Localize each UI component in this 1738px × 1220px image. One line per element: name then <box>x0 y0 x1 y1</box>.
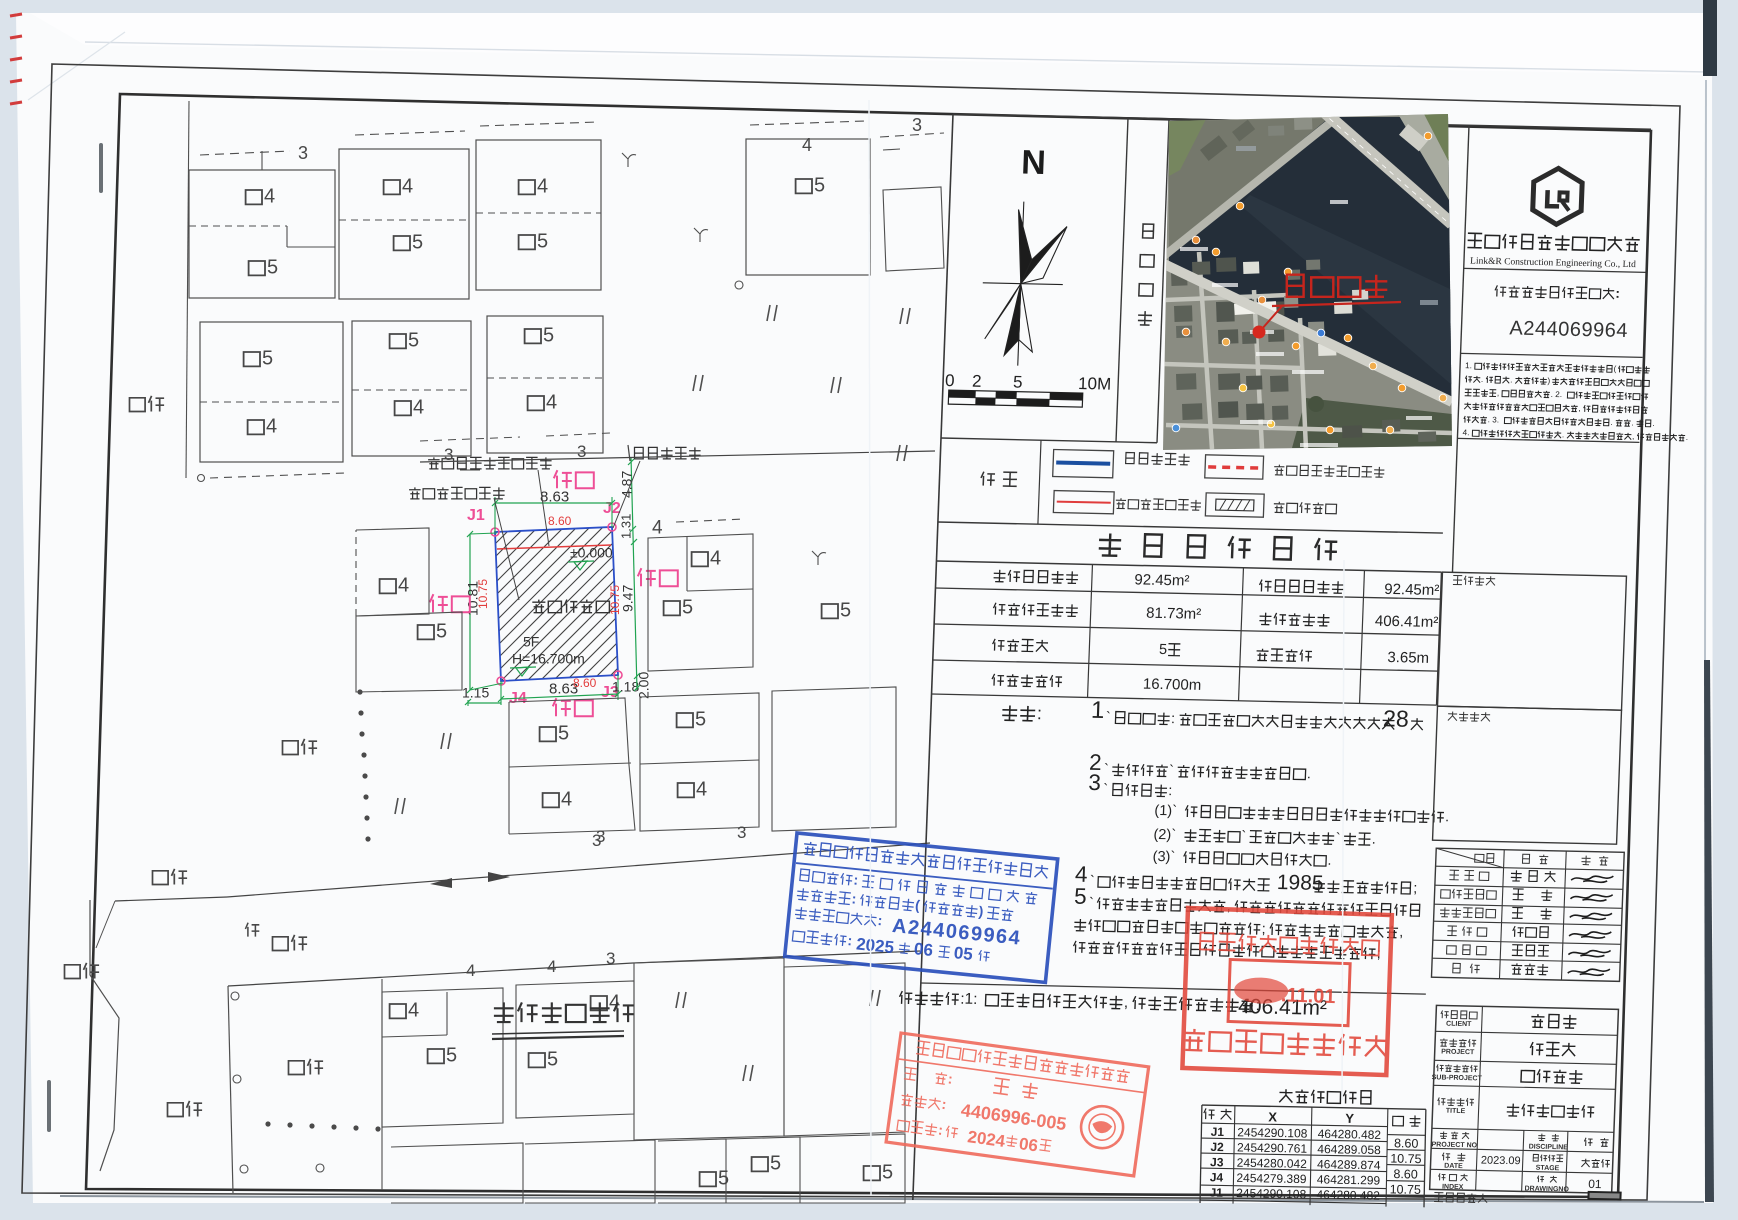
svg-text:5: 5 <box>682 596 693 618</box>
svg-text:5: 5 <box>814 174 825 196</box>
svg-text:Y: Y <box>1345 1111 1354 1126</box>
svg-text:2454279.389: 2454279.389 <box>1236 1171 1307 1186</box>
svg-text:N: N <box>1021 144 1047 183</box>
svg-text:92.45m²: 92.45m² <box>1134 571 1190 589</box>
svg-text:H=16.700m: H=16.700m <box>512 651 585 667</box>
svg-text:J4: J4 <box>1210 1170 1224 1184</box>
svg-text:8.63: 8.63 <box>540 488 569 505</box>
svg-text::1:: :1: <box>960 991 978 1008</box>
svg-text:5F: 5F <box>523 634 539 650</box>
svg-text:16.700m: 16.700m <box>1143 676 1202 694</box>
svg-text::: : <box>1171 711 1176 727</box>
svg-text:A244069964: A244069964 <box>1509 317 1628 342</box>
svg-text:,: , <box>1497 389 1500 398</box>
svg-text:.: . <box>1652 419 1655 428</box>
svg-text:4: 4 <box>264 185 275 207</box>
svg-text:TITLE: TITLE <box>1446 1108 1466 1115</box>
svg-text:3: 3 <box>444 445 453 464</box>
svg-text:5: 5 <box>262 347 273 369</box>
svg-text:8.60: 8.60 <box>1394 1136 1419 1150</box>
svg-text:5: 5 <box>408 329 419 351</box>
svg-text:8.60: 8.60 <box>548 514 572 528</box>
svg-text:3: 3 <box>577 442 586 461</box>
svg-text:10.75: 10.75 <box>1390 1182 1422 1197</box>
svg-text:.: . <box>1307 766 1312 782</box>
svg-text:1.: 1. <box>1465 361 1472 370</box>
svg-text:`: ` <box>1089 874 1094 890</box>
svg-text:;: ; <box>1261 921 1266 937</box>
svg-text:5: 5 <box>770 1152 781 1174</box>
svg-text:5: 5 <box>1013 373 1023 392</box>
svg-text:.: . <box>1610 418 1613 427</box>
svg-text:PROJECT NO: PROJECT NO <box>1431 1141 1477 1149</box>
svg-text:J1: J1 <box>1211 1125 1225 1139</box>
svg-text:92.45m²: 92.45m² <box>1384 581 1440 599</box>
svg-text:05: 05 <box>953 943 974 964</box>
svg-text:,: , <box>1124 994 1129 1011</box>
svg-text:5: 5 <box>537 230 548 252</box>
svg-text:464289.874: 464289.874 <box>1317 1157 1381 1172</box>
svg-text:10.75: 10.75 <box>1390 1152 1422 1167</box>
svg-text:06: 06 <box>913 939 934 960</box>
svg-text:8.60: 8.60 <box>1393 1167 1418 1181</box>
svg-text:4: 4 <box>546 391 557 413</box>
svg-text:2: 2 <box>972 372 982 391</box>
svg-text:5: 5 <box>718 1167 729 1189</box>
svg-text:(1)`: (1)` <box>1154 803 1177 819</box>
svg-text:10.75: 10.75 <box>608 585 622 615</box>
svg-text:2025: 2025 <box>855 934 895 957</box>
svg-text:5: 5 <box>436 620 447 642</box>
svg-text:`: ` <box>1104 762 1109 778</box>
svg-text:2023.09: 2023.09 <box>1481 1154 1521 1167</box>
svg-text:.: . <box>1631 418 1634 427</box>
svg-text:PROJECT: PROJECT <box>1441 1048 1475 1056</box>
svg-text:464281.299: 464281.299 <box>1317 1172 1381 1187</box>
svg-text:01: 01 <box>1588 1177 1602 1191</box>
svg-text:.: . <box>1445 809 1450 825</box>
svg-text:406.41m²: 406.41m² <box>1375 613 1439 631</box>
svg-text:5: 5 <box>840 599 851 621</box>
svg-text:(3)`: (3)` <box>1152 849 1175 865</box>
svg-text:4: 4 <box>537 175 548 197</box>
svg-text:2454290.108: 2454290.108 <box>1236 1186 1307 1201</box>
svg-text:2454290.108: 2454290.108 <box>1237 1125 1308 1140</box>
svg-text:4.: 4. <box>1462 428 1469 437</box>
svg-text:.: . <box>1510 376 1513 385</box>
svg-text:4: 4 <box>547 957 556 976</box>
svg-text:10M: 10M <box>1078 374 1112 394</box>
svg-text:4: 4 <box>266 415 277 437</box>
svg-text:,: , <box>1226 899 1231 915</box>
svg-text:3: 3 <box>1088 770 1101 795</box>
svg-text:464280.482: 464280.482 <box>1318 1127 1382 1142</box>
svg-text:2454280.042: 2454280.042 <box>1237 1156 1308 1171</box>
svg-text:464280.482: 464280.482 <box>1316 1188 1380 1203</box>
svg-text::: : <box>1037 703 1043 723</box>
svg-text:4: 4 <box>398 574 409 596</box>
svg-text:3: 3 <box>606 949 615 968</box>
svg-text:2454290.761: 2454290.761 <box>1237 1140 1308 1155</box>
svg-text:5: 5 <box>267 256 278 278</box>
svg-text:J1: J1 <box>1209 1186 1223 1200</box>
svg-text:STAGE: STAGE <box>1536 1165 1560 1173</box>
svg-text:4: 4 <box>413 396 424 418</box>
svg-text:`: ` <box>1089 896 1094 912</box>
svg-text:.: . <box>1372 832 1377 848</box>
svg-text:10.75: 10.75 <box>476 579 490 609</box>
svg-text:4: 4 <box>466 961 475 980</box>
svg-text:4: 4 <box>408 999 419 1021</box>
svg-text:81.73m²: 81.73m² <box>1146 605 1202 623</box>
svg-text:3: 3 <box>298 143 308 163</box>
svg-text:5: 5 <box>695 708 706 730</box>
svg-text:5: 5 <box>543 324 554 346</box>
svg-text:3: 3 <box>912 115 922 135</box>
svg-text:5: 5 <box>1074 884 1087 909</box>
svg-text:±0.000: ±0.000 <box>570 545 613 561</box>
svg-text:5: 5 <box>1159 642 1168 658</box>
svg-text:5: 5 <box>412 231 423 253</box>
svg-text:3: 3 <box>592 831 601 850</box>
svg-text:INDEX: INDEX <box>1442 1184 1464 1191</box>
svg-text:.11.01: .11.01 <box>1281 984 1336 1008</box>
svg-text:DATE: DATE <box>1444 1163 1463 1170</box>
svg-text:4: 4 <box>652 518 663 539</box>
svg-text::: : <box>1168 783 1173 799</box>
svg-text:8.60: 8.60 <box>573 676 597 690</box>
svg-text:9.47: 9.47 <box>620 585 636 612</box>
svg-text:J1: J1 <box>467 507 485 524</box>
svg-text:X: X <box>1268 1109 1277 1124</box>
svg-text:1.31: 1.31 <box>619 514 634 539</box>
svg-text:.: . <box>1686 433 1689 442</box>
svg-text:4: 4 <box>710 547 721 569</box>
svg-text:464289.058: 464289.058 <box>1317 1142 1381 1157</box>
svg-text:3: 3 <box>737 823 746 842</box>
svg-text:(2)`: (2)` <box>1153 827 1176 843</box>
svg-text:`: ` <box>1106 710 1111 726</box>
svg-text:J2: J2 <box>1210 1140 1224 1154</box>
svg-text:J3: J3 <box>1210 1155 1224 1169</box>
svg-text:DISCIPLINE: DISCIPLINE <box>1529 1143 1569 1151</box>
svg-text:.: . <box>1481 375 1484 384</box>
svg-text:;: ; <box>1413 881 1418 897</box>
svg-text:5: 5 <box>446 1044 457 1066</box>
svg-text:`: ` <box>1241 829 1246 845</box>
svg-text:0: 0 <box>945 371 955 390</box>
svg-text:4: 4 <box>561 788 572 810</box>
svg-text:28: 28 <box>1383 705 1410 732</box>
svg-text:.: . <box>1327 853 1332 869</box>
svg-text:5: 5 <box>547 1048 558 1070</box>
svg-text:. 2.: . 2. <box>1551 390 1563 399</box>
svg-text:3.65m: 3.65m <box>1387 649 1429 667</box>
svg-text:CLIENT: CLIENT <box>1446 1021 1472 1029</box>
svg-text:5: 5 <box>558 722 569 744</box>
svg-text:4: 4 <box>402 175 413 197</box>
svg-text::: : <box>1615 286 1620 301</box>
svg-text:. 3.: . 3. <box>1488 415 1500 424</box>
svg-text:`: ` <box>1335 831 1340 847</box>
svg-text:,: , <box>1399 924 1404 940</box>
svg-text:5: 5 <box>882 1161 893 1183</box>
svg-text:06: 06 <box>1018 1134 1039 1155</box>
svg-text:1: 1 <box>1091 697 1105 724</box>
svg-text:SUB-PROJECT: SUB-PROJECT <box>1432 1074 1483 1082</box>
svg-text:`: ` <box>1169 763 1174 779</box>
svg-text:`: ` <box>1103 782 1108 798</box>
svg-text:,: , <box>1632 432 1635 441</box>
svg-text:,: , <box>1578 404 1581 413</box>
svg-text:4: 4 <box>802 135 812 155</box>
svg-text:4: 4 <box>696 778 707 800</box>
svg-text:.: . <box>1562 430 1565 439</box>
svg-text:DRAWINGNO: DRAWINGNO <box>1524 1185 1569 1193</box>
